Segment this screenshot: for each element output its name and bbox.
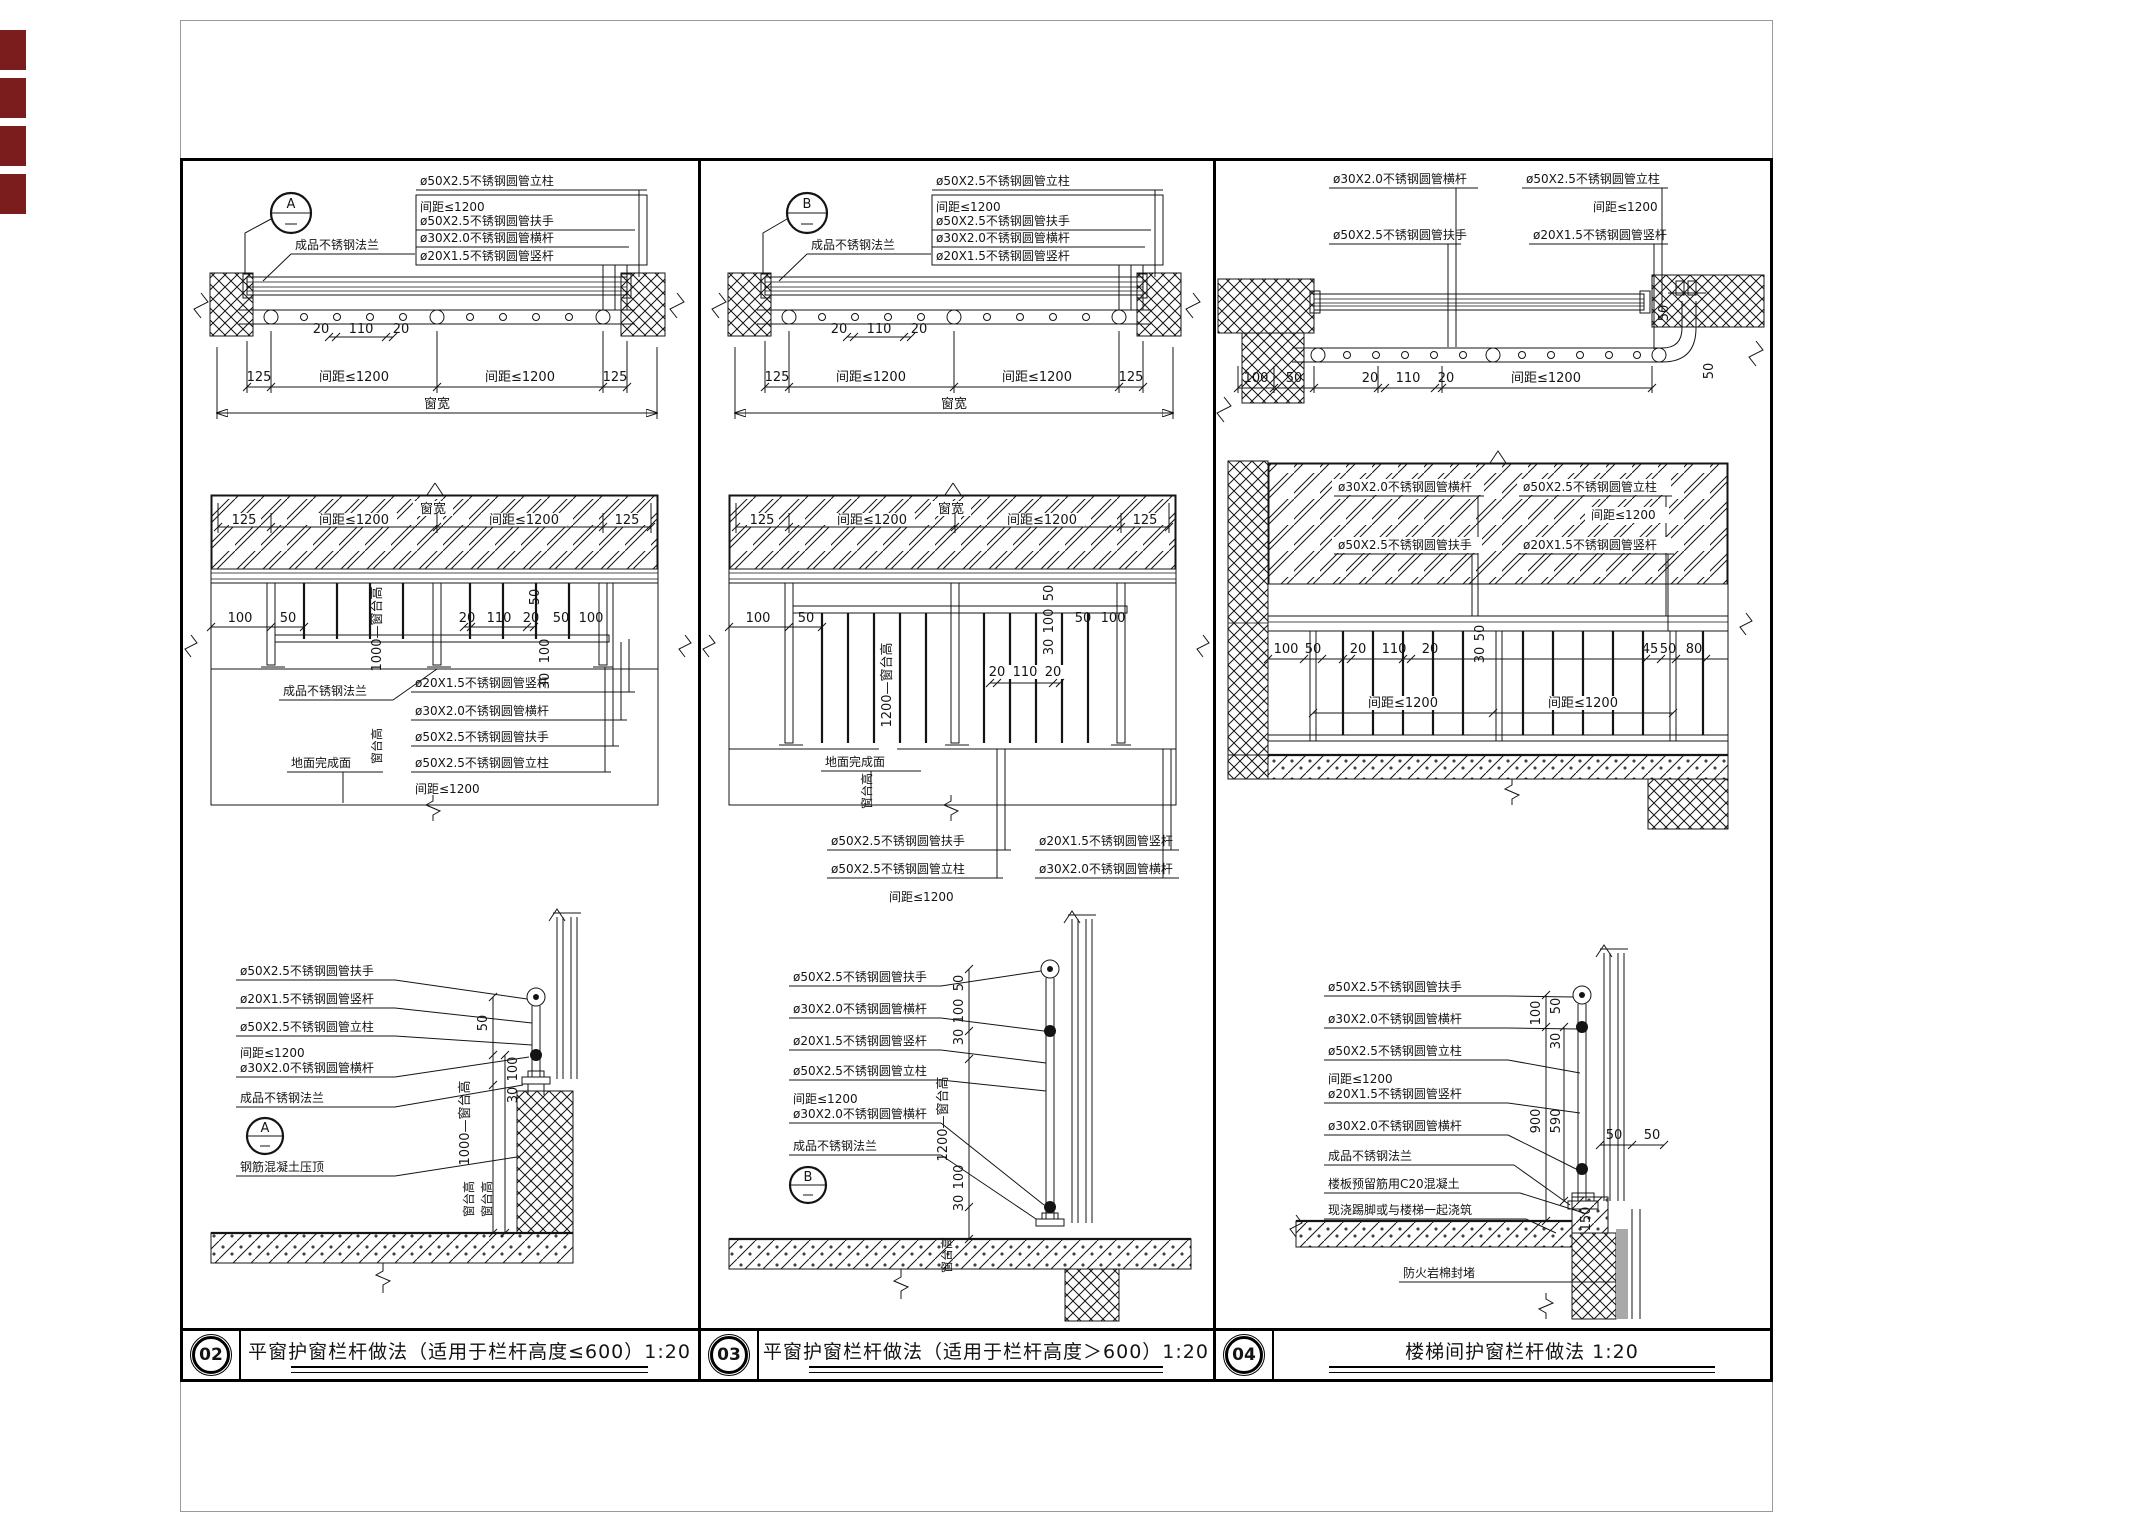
- panel-title: 平窗护窗栏杆做法（适用于栏杆高度≤600）1:20: [248, 1337, 691, 1364]
- post-label: ø50X2.5不锈钢圆管立柱: [240, 1019, 374, 1034]
- crossbar-label: ø30X2.0不锈钢圆管横杆: [1328, 1118, 1462, 1133]
- p1-top-plan-view: A 成品不锈钢法兰 ø50X2.5不锈钢圆管立柱 间距≤1200 ø50X2.5…: [194, 173, 684, 419]
- dim-100-v: 100: [1042, 609, 1057, 634]
- dim-50: 50: [1660, 642, 1677, 657]
- dim-125: 125: [765, 370, 790, 385]
- dim-110: 110: [349, 322, 374, 337]
- sill-height-label: 窗台高: [369, 728, 384, 764]
- handrail-label: ø50X2.5不锈钢圆管扶手: [415, 729, 549, 744]
- baluster-label: ø20X1.5不锈钢圆管竖杆: [240, 991, 374, 1006]
- dim-spacing: 间距≤1200: [319, 513, 389, 528]
- sill-height-label: 窗台高: [939, 1237, 954, 1273]
- dim-20: 20: [989, 665, 1006, 680]
- p3-top-callouts: ø30X2.0不锈钢圆管横杆 ø50X2.5不锈钢圆管立柱 间距≤1200 ø5…: [1329, 171, 1668, 349]
- dim-100-v: 100: [952, 1165, 967, 1190]
- dim-50: 50: [280, 611, 297, 626]
- dim-window-width: 窗宽: [420, 501, 446, 517]
- post-label: ø50X2.5不锈钢圆管立柱: [1328, 1043, 1462, 1058]
- panel-number-box: 03: [701, 1331, 759, 1379]
- dim-30-v: 30: [1549, 1033, 1564, 1050]
- dim-20: 20: [393, 322, 410, 337]
- dim-125: 125: [615, 513, 640, 528]
- dim-110: 110: [487, 611, 512, 626]
- crossbar-label: ø30X2.0不锈钢圆管横杆: [1333, 171, 1467, 186]
- title-cell-04: 04 楼梯间护窗栏杆做法 1:20: [1216, 1331, 1770, 1379]
- dim-spacing: 间距≤1200: [1368, 696, 1438, 711]
- flange-label: 成品不锈钢法兰: [793, 1139, 877, 1153]
- spacing-label: 间距≤1200: [793, 1092, 858, 1106]
- dim-50-v: 50: [1657, 305, 1672, 322]
- panel-number-box: 02: [183, 1331, 241, 1379]
- dim-125: 125: [603, 370, 628, 385]
- dim-110: 110: [1396, 371, 1421, 386]
- dim-30-v: 30: [1042, 639, 1057, 656]
- edge-mark: [0, 126, 26, 166]
- p2-top-plan-view: B 成品不锈钢法兰 ø50X2.5不锈钢圆管立柱 间距≤1200 ø50X2.5…: [712, 173, 1200, 419]
- break-mark: [944, 795, 958, 821]
- spacing-label: 间距≤1200: [1591, 508, 1656, 522]
- dim-30-v: 30: [952, 1195, 967, 1212]
- crossbar-label: ø30X2.0不锈钢圆管横杆: [793, 1106, 927, 1121]
- floor-finish-label: 地面完成面: [825, 754, 885, 769]
- firestop-label: 防火岩棉封堵: [1403, 1265, 1475, 1280]
- dim-50: 50: [1644, 1128, 1661, 1143]
- dim-spacing: 间距≤1200: [837, 513, 907, 528]
- spacing-label: 间距≤1200: [415, 782, 480, 796]
- dim-125: 125: [1119, 370, 1144, 385]
- title-underline: [1329, 1366, 1716, 1373]
- flange-label: 成品不锈钢法兰: [1328, 1149, 1412, 1163]
- dim-110: 110: [867, 322, 892, 337]
- dim-50-v: 50: [952, 975, 967, 992]
- dim-50-v: 50: [476, 1015, 491, 1032]
- baluster-label: ø20X1.5不锈钢圆管竖杆: [1523, 537, 1657, 552]
- p2-bottom-section-view: ø50X2.5不锈钢圆管扶手 ø30X2.0不锈钢圆管横杆 ø20X1.5不锈钢…: [729, 911, 1191, 1321]
- p2-top-detail-mark: B: [763, 193, 827, 273]
- panel-03: B 成品不锈钢法兰 ø50X2.5不锈钢圆管立柱 间距≤1200 ø50X2.5…: [701, 161, 1213, 1331]
- sill-height-label: 窗台高: [859, 773, 874, 809]
- dim-100: 100: [1274, 642, 1299, 657]
- baluster-label: ø20X1.5不锈钢圆管竖杆: [793, 1033, 927, 1048]
- break-mark: [376, 1263, 390, 1293]
- p3-top-plan-view: ø30X2.0不锈钢圆管横杆 ø50X2.5不锈钢圆管立柱 间距≤1200 ø5…: [1217, 171, 1764, 422]
- baluster-label: ø20X1.5不锈钢圆管竖杆: [936, 248, 1070, 263]
- p1-top-callouts: ø50X2.5不锈钢圆管立柱 间距≤1200 ø50X2.5不锈钢圆管扶手 ø3…: [416, 173, 647, 310]
- dim-100: 100: [579, 611, 604, 626]
- crossbar-label: ø30X2.0不锈钢圆管横杆: [415, 703, 549, 718]
- panel-04: ø30X2.0不锈钢圆管横杆 ø50X2.5不锈钢圆管立柱 间距≤1200 ø5…: [1216, 161, 1770, 1331]
- dim-spacing: 间距≤1200: [1002, 370, 1072, 385]
- post-label: ø50X2.5不锈钢圆管立柱: [793, 1063, 927, 1078]
- panel-number: 04: [1232, 1345, 1256, 1365]
- handrail-label: ø50X2.5不锈钢圆管扶手: [936, 213, 1070, 228]
- handrail-label: ø50X2.5不锈钢圆管扶手: [831, 833, 965, 848]
- panel-number: 03: [717, 1345, 741, 1365]
- cast-skirt-label: 现浇踢脚或与楼梯一起浇筑: [1328, 1202, 1472, 1217]
- p2-top-callouts: ø50X2.5不锈钢圆管立柱 间距≤1200 ø50X2.5不锈钢圆管扶手 ø3…: [932, 173, 1163, 310]
- panel-number-box: 04: [1216, 1331, 1274, 1379]
- crossbar-label: ø30X2.0不锈钢圆管横杆: [1328, 1011, 1462, 1026]
- dim-110: 110: [1013, 665, 1038, 680]
- crossbar-label: ø30X2.0不锈钢圆管横杆: [793, 1001, 927, 1016]
- panel-02: A 成品不锈钢法兰 ø50X2.5不锈钢圆管立柱 间距≤1200 ø50X2.5…: [183, 161, 698, 1331]
- post-label: ø50X2.5不锈钢圆管立柱: [420, 173, 554, 188]
- detail-mark-letter: B: [804, 1170, 813, 1185]
- dim-spacing: 间距≤1200: [319, 370, 389, 385]
- dim-80: 80: [1686, 642, 1703, 657]
- crossbar-label: ø30X2.0不锈钢圆管横杆: [240, 1060, 374, 1075]
- dim-20: 20: [523, 611, 540, 626]
- post-label: ø50X2.5不锈钢圆管立柱: [1523, 479, 1657, 494]
- dim-20: 20: [1350, 642, 1367, 657]
- p1-bottom-section-view: ø50X2.5不锈钢圆管扶手 ø20X1.5不锈钢圆管竖杆 ø50X2.5不锈钢…: [211, 909, 581, 1293]
- baluster-label: ø20X1.5不锈钢圆管竖杆: [1039, 833, 1173, 848]
- post-label: ø50X2.5不锈钢圆管立柱: [936, 173, 1070, 188]
- p1-mid-elevation-view: 窗宽 125 间距≤1200 间距≤1200 125: [185, 483, 691, 821]
- post-label: ø50X2.5不锈钢圆管立柱: [831, 861, 965, 876]
- dim-30-v: 30: [506, 1087, 521, 1104]
- handrail-label: ø50X2.5不锈钢圆管扶手: [240, 963, 374, 978]
- dim-125: 125: [1133, 513, 1158, 528]
- dim-sill-1200: 1200—窗台高: [935, 1076, 951, 1161]
- p2-mid-callouts: ø50X2.5不锈钢圆管扶手 ø50X2.5不锈钢圆管立柱 间距≤1200 ø2…: [827, 749, 1179, 904]
- baluster-label: ø20X1.5不锈钢圆管竖杆: [1328, 1086, 1462, 1101]
- dim-spacing: 间距≤1200: [489, 513, 559, 528]
- dim-100-v: 100: [952, 999, 967, 1024]
- p1-mid-dimensions: 100 50 20 110 20 50 100 50 100 30 1000—窗…: [207, 586, 603, 689]
- dim-20: 20: [1362, 371, 1379, 386]
- slab-infill-label: 楼板预留筋用C20混凝土: [1328, 1176, 1460, 1191]
- dim-125: 125: [247, 370, 272, 385]
- detail-mark-letter: B: [803, 197, 812, 212]
- dim-20: 20: [1045, 665, 1062, 680]
- handrail-label: ø50X2.5不锈钢圆管扶手: [420, 213, 554, 228]
- dim-20: 20: [911, 322, 928, 337]
- dim-50-v: 50: [1702, 363, 1717, 380]
- flange-label: 成品不锈钢法兰: [295, 238, 379, 252]
- dim-spacing: 间距≤1200: [1548, 696, 1618, 711]
- drawing-frame: A 成品不锈钢法兰 ø50X2.5不锈钢圆管立柱 间距≤1200 ø50X2.5…: [180, 158, 1773, 1382]
- dim-30-v: 30: [1473, 647, 1488, 664]
- p3-mid-elevation-view: ø30X2.0不锈钢圆管横杆 ø50X2.5不锈钢圆管立柱 间距≤1200 ø5…: [1228, 451, 1752, 829]
- handrail-label: ø50X2.5不锈钢圆管扶手: [1338, 537, 1472, 552]
- break-mark: [945, 483, 961, 495]
- dim-100-v: 100: [538, 639, 553, 664]
- dim-20: 20: [831, 322, 848, 337]
- dim-900-v: 900: [1529, 1109, 1544, 1134]
- dim-window-width: 窗宽: [938, 501, 964, 517]
- dim-sill-1000: 1000—窗台高: [369, 586, 385, 671]
- dim-150-v: 150: [1579, 1207, 1594, 1232]
- break-mark: [426, 795, 440, 821]
- handrail-label: ø50X2.5不锈钢圆管扶手: [793, 969, 927, 984]
- panel-02-drawing: A 成品不锈钢法兰 ø50X2.5不锈钢圆管立柱 间距≤1200 ø50X2.5…: [183, 161, 698, 1328]
- flange-label: 成品不锈钢法兰: [283, 684, 367, 698]
- panel-number-circle: 04: [1225, 1336, 1263, 1374]
- break-mark: [427, 483, 443, 495]
- dim-spacing: 间距≤1200: [1511, 371, 1581, 386]
- post-label: ø50X2.5不锈钢圆管立柱: [415, 755, 549, 770]
- dim-50: 50: [798, 611, 815, 626]
- detail-mark-letter: A: [261, 1121, 270, 1136]
- crossbar-label: ø30X2.0不锈钢圆管横杆: [1039, 861, 1173, 876]
- dim-50-v: 50: [528, 589, 543, 606]
- dim-590-v: 590: [1549, 1109, 1564, 1134]
- p3-bottom-dimensions: 100 50 30 900 590 50 50 150: [1529, 991, 1668, 1231]
- drawing-sheet: A 成品不锈钢法兰 ø50X2.5不锈钢圆管立柱 间距≤1200 ø50X2.5…: [0, 0, 2150, 1520]
- dim-spacing: 间距≤1200: [1007, 513, 1077, 528]
- p1-top-detail-mark: A: [245, 193, 311, 273]
- dim-20: 20: [313, 322, 330, 337]
- dim-sill-1000: 1000—窗台高: [457, 1080, 473, 1165]
- break-mark: [712, 293, 1200, 318]
- title-underline: [291, 1366, 647, 1373]
- dim-100: 100: [1101, 611, 1126, 626]
- dim-50: 50: [1606, 1128, 1623, 1143]
- flange-label: 成品不锈钢法兰: [811, 238, 895, 252]
- dim-50-v: 50: [1042, 585, 1057, 602]
- panel-number-circle: 02: [192, 1336, 230, 1374]
- dim-100: 100: [228, 611, 253, 626]
- crossbar-label: ø30X2.0不锈钢圆管横杆: [1338, 479, 1472, 494]
- dim-125: 125: [750, 513, 775, 528]
- sill-height-label: 窗台高: [479, 1181, 494, 1217]
- break-mark: [194, 293, 684, 318]
- spacing-label: 间距≤1200: [889, 890, 954, 904]
- edge-mark: [0, 30, 26, 70]
- title-underline: [809, 1366, 1163, 1373]
- dim-50-v: 50: [1549, 998, 1564, 1015]
- dim-45: 45: [1642, 642, 1659, 657]
- panel-columns: A 成品不锈钢法兰 ø50X2.5不锈钢圆管立柱 间距≤1200 ø50X2.5…: [183, 161, 1770, 1331]
- dim-100: 100: [746, 611, 771, 626]
- break-mark: [894, 1269, 908, 1299]
- crossbar-label: ø30X2.0不锈钢圆管横杆: [936, 230, 1070, 245]
- sill-height-label: 窗台高: [461, 1181, 476, 1217]
- dim-100-v: 100: [1529, 1001, 1544, 1026]
- p2-bottom-callouts: ø50X2.5不锈钢圆管扶手 ø30X2.0不锈钢圆管横杆 ø20X1.5不锈钢…: [789, 969, 1046, 1219]
- p2-bottom-dimensions: 50 100 30 1200—窗台高 100 30 窗台高: [935, 965, 973, 1273]
- crossbar-label: ø30X2.0不锈钢圆管横杆: [420, 230, 554, 245]
- handrail-label: ø50X2.5不锈钢圆管扶手: [1333, 227, 1467, 242]
- panel-number-circle: 03: [710, 1336, 748, 1374]
- edge-mark: [0, 78, 26, 118]
- title-strip: 02 平窗护窗栏杆做法（适用于栏杆高度≤600）1:20 03 平窗护窗栏杆做法…: [183, 1328, 1770, 1379]
- dim-100: 100: [1244, 371, 1269, 386]
- baluster-label: ø20X1.5不锈钢圆管竖杆: [415, 675, 549, 690]
- dim-20: 20: [1422, 642, 1439, 657]
- panel-title: 平窗护窗栏杆做法（适用于栏杆高度＞600）1:20: [763, 1337, 1209, 1364]
- post-label: ø50X2.5不锈钢圆管立柱: [1526, 171, 1660, 186]
- p2-top-dimensions: 20 110 20 125 间距≤1200 间距≤1200 125 窗宽: [735, 322, 1173, 419]
- dim-50: 50: [1075, 611, 1092, 626]
- dim-50: 50: [553, 611, 570, 626]
- baluster-label: ø20X1.5不锈钢圆管竖杆: [1533, 227, 1667, 242]
- handrail-label: ø50X2.5不锈钢圆管扶手: [1328, 979, 1462, 994]
- spacing-label: 间距≤1200: [936, 200, 1001, 214]
- p2-mid-elevation-view: 窗宽 125 间距≤1200 间距≤1200 125: [703, 483, 1209, 904]
- panel-title: 楼梯间护窗栏杆做法 1:20: [1405, 1337, 1639, 1364]
- spacing-label: 间距≤1200: [240, 1046, 305, 1060]
- p1-top-dimensions: 20 110 20 125 间距≤1200 间距≤1200 125 窗宽: [217, 322, 657, 419]
- coping-label: 钢筋混凝土压顶: [240, 1159, 324, 1174]
- panel-03-drawing: B 成品不锈钢法兰 ø50X2.5不锈钢圆管立柱 间距≤1200 ø50X2.5…: [701, 161, 1213, 1328]
- dim-spacing: 间距≤1200: [485, 370, 555, 385]
- dim-30-v: 30: [952, 1029, 967, 1046]
- dim-window-width: 窗宽: [941, 396, 967, 412]
- p3-bottom-section-view: ø50X2.5不锈钢圆管扶手 ø30X2.0不锈钢圆管横杆 ø50X2.5不锈钢…: [1290, 945, 1668, 1319]
- dim-20: 20: [459, 611, 476, 626]
- dim-window-width: 窗宽: [424, 396, 450, 412]
- break-mark: [185, 635, 691, 657]
- dim-sill-1200: 1200—窗台高: [879, 642, 895, 727]
- dim-50-v: 50: [1473, 625, 1488, 642]
- flange-label: 成品不锈钢法兰: [240, 1091, 324, 1105]
- dim-100-v: 100: [506, 1057, 521, 1082]
- dim-125: 125: [232, 513, 257, 528]
- dim-20: 20: [1438, 371, 1455, 386]
- title-cell-02: 02 平窗护窗栏杆做法（适用于栏杆高度≤600）1:20: [183, 1331, 698, 1379]
- panel-04-drawing: ø30X2.0不锈钢圆管横杆 ø50X2.5不锈钢圆管立柱 间距≤1200 ø5…: [1216, 161, 1770, 1328]
- floor-finish-label: 地面完成面: [291, 755, 351, 770]
- edge-mark: [0, 174, 26, 214]
- dim-110: 110: [1382, 642, 1407, 657]
- baluster-label: ø20X1.5不锈钢圆管竖杆: [420, 248, 554, 263]
- dim-spacing: 间距≤1200: [836, 370, 906, 385]
- panel-number: 02: [199, 1345, 223, 1365]
- p1-bottom-callouts: ø50X2.5不锈钢圆管扶手 ø20X1.5不锈钢圆管竖杆 ø50X2.5不锈钢…: [236, 963, 532, 1176]
- spacing-label: 间距≤1200: [1328, 1072, 1393, 1086]
- spacing-label: 间距≤1200: [1593, 200, 1658, 214]
- dim-50: 50: [1286, 371, 1303, 386]
- break-mark: [703, 635, 1209, 657]
- p1-bottom-dimensions: 50 100 30 1000—窗台高 窗台高 窗台高: [457, 993, 521, 1237]
- title-cell-03: 03 平窗护窗栏杆做法（适用于栏杆高度＞600）1:20: [701, 1331, 1213, 1379]
- dim-50: 50: [1305, 642, 1322, 657]
- detail-mark-letter: A: [287, 197, 296, 212]
- spacing-label: 间距≤1200: [420, 200, 485, 214]
- break-mark: [1490, 451, 1506, 463]
